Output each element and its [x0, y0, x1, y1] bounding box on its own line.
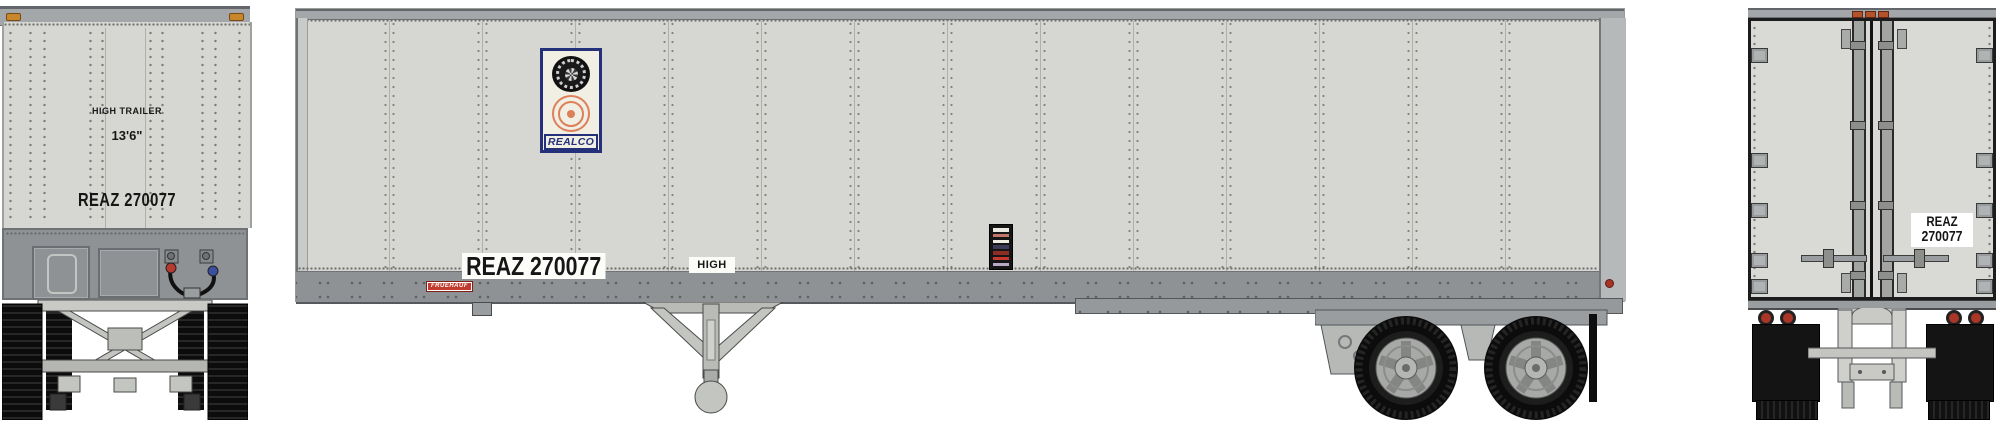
- lock-rod-keeper: [1850, 41, 1866, 50]
- panel-plate: [47, 254, 77, 294]
- clearance-light-icon: [1878, 11, 1889, 18]
- front-body-panel: HIGH TRAILER 13'6" REAZ 270077: [2, 22, 252, 228]
- front-undercarriage: [2, 300, 248, 420]
- fruehauf-badge: FRUEHAUF: [426, 281, 473, 292]
- lock-rod-keeper: [1850, 201, 1866, 210]
- panel-seam: [1505, 21, 1506, 273]
- placard-stripe: [993, 228, 1009, 232]
- door-hinge: [1976, 279, 1993, 294]
- door-handle-grip: [1914, 249, 1925, 268]
- front-skirt: [2, 228, 248, 300]
- side-high-label: HIGH: [689, 257, 735, 273]
- rear-reporting-mark-label: REAZ 270077: [1911, 213, 1973, 247]
- panel-seam: [668, 21, 669, 273]
- hinge-strap: [1897, 29, 1907, 49]
- front-reporting-mark: REAZ 270077: [26, 190, 228, 211]
- lock-rod-keeper: [1878, 271, 1894, 280]
- lock-rod-keeper: [1850, 121, 1866, 130]
- lock-rod-keeper: [1878, 41, 1894, 50]
- panel-seam: [854, 21, 855, 273]
- rear-doors: REAZ 270077: [1748, 18, 1996, 300]
- front-access-panel: [98, 248, 160, 298]
- door-hinge: [1751, 279, 1768, 294]
- side-reporting-mark: REAZ 270077: [462, 253, 605, 279]
- landing-gear: [633, 302, 793, 420]
- rear-corner-post: [1599, 18, 1626, 301]
- tire-emblem-icon: [552, 56, 590, 92]
- wheel-icon: [1484, 316, 1588, 420]
- panel-seam: [1319, 21, 1320, 273]
- hinge-strap: [1841, 273, 1851, 293]
- rear-view: REAZ 270077: [1748, 8, 1996, 420]
- rivet-row: [6, 232, 244, 235]
- door-hinge: [1751, 48, 1768, 63]
- door-hinge: [1976, 48, 1993, 63]
- king-pin: [472, 302, 492, 316]
- glad-hands-hoses: [160, 238, 226, 300]
- door-hinge: [1751, 203, 1768, 218]
- hinge-strap: [1897, 273, 1907, 293]
- lock-rod-keeper: [1878, 121, 1894, 130]
- front-high-trailer-label: HIGH TRAILER: [4, 106, 250, 116]
- panel-seam: [1412, 21, 1413, 273]
- rivet-row: [4, 23, 250, 26]
- mud-flap: [1926, 324, 1994, 402]
- panel-seam: [1226, 21, 1227, 273]
- front-corner-post: [296, 18, 308, 271]
- placard-stripe: [993, 245, 1009, 249]
- panel-seam: [947, 21, 948, 273]
- rear-mark-line2: 270077: [1917, 229, 1968, 245]
- rivet-row: [298, 19, 1622, 22]
- marker-light-icon: [6, 13, 21, 21]
- front-height-label: 13'6": [4, 128, 250, 143]
- side-marker-light-icon: [1605, 279, 1614, 288]
- front-view: HIGH TRAILER 13'6" REAZ 270077: [2, 6, 248, 420]
- door-center-seam: [1870, 21, 1873, 297]
- placard-stripe: [993, 263, 1009, 267]
- placard-stripe: [993, 240, 1009, 244]
- panel-seam: [482, 21, 483, 273]
- door-placard: [989, 224, 1013, 270]
- rear-wheel: [1928, 400, 1990, 420]
- door-hinge: [1751, 253, 1768, 268]
- rivet-column: [9, 30, 12, 224]
- clearance-light-icon: [1852, 11, 1863, 18]
- marker-light-icon: [229, 13, 244, 21]
- placard-stripe: [993, 234, 1009, 238]
- panel-seam: [1133, 21, 1134, 273]
- tandem-wheels: [1315, 306, 1615, 424]
- lock-rod-keeper: [1850, 271, 1866, 280]
- side-view: REALCO REAZ 270077 FRUEHAUF HIGH: [295, 6, 1625, 424]
- placard-stripe: [993, 257, 1009, 261]
- door-hinge: [1976, 153, 1993, 168]
- rivet-column: [238, 30, 241, 224]
- door-hinge: [1976, 203, 1993, 218]
- wheel-rim-emblem-icon: [552, 95, 590, 132]
- front-access-panel: [32, 246, 90, 300]
- realco-placard: REALCO: [540, 48, 602, 153]
- realco-logo-text: REALCO: [544, 134, 598, 150]
- rear-wheel: [1756, 400, 1818, 420]
- door-handle-grip: [1823, 249, 1834, 268]
- trailer-artwork: HIGH TRAILER 13'6" REAZ 270077: [0, 0, 2000, 424]
- lock-rod-keeper: [1878, 201, 1894, 210]
- door-handle: [1801, 255, 1867, 262]
- door-hinge: [1751, 153, 1768, 168]
- panel-seam: [1040, 21, 1041, 273]
- hinge-strap: [1841, 29, 1851, 49]
- panel-seam: [389, 21, 390, 273]
- door-hinge: [1976, 253, 1993, 268]
- panel-seam: [761, 21, 762, 273]
- wheel-icon: [1354, 316, 1458, 420]
- rear-mark-line1: REAZ: [1917, 213, 1968, 229]
- placard-stripe: [993, 251, 1009, 255]
- clearance-light-icon: [1865, 11, 1876, 18]
- rear-bumper-structure: [1808, 308, 1936, 418]
